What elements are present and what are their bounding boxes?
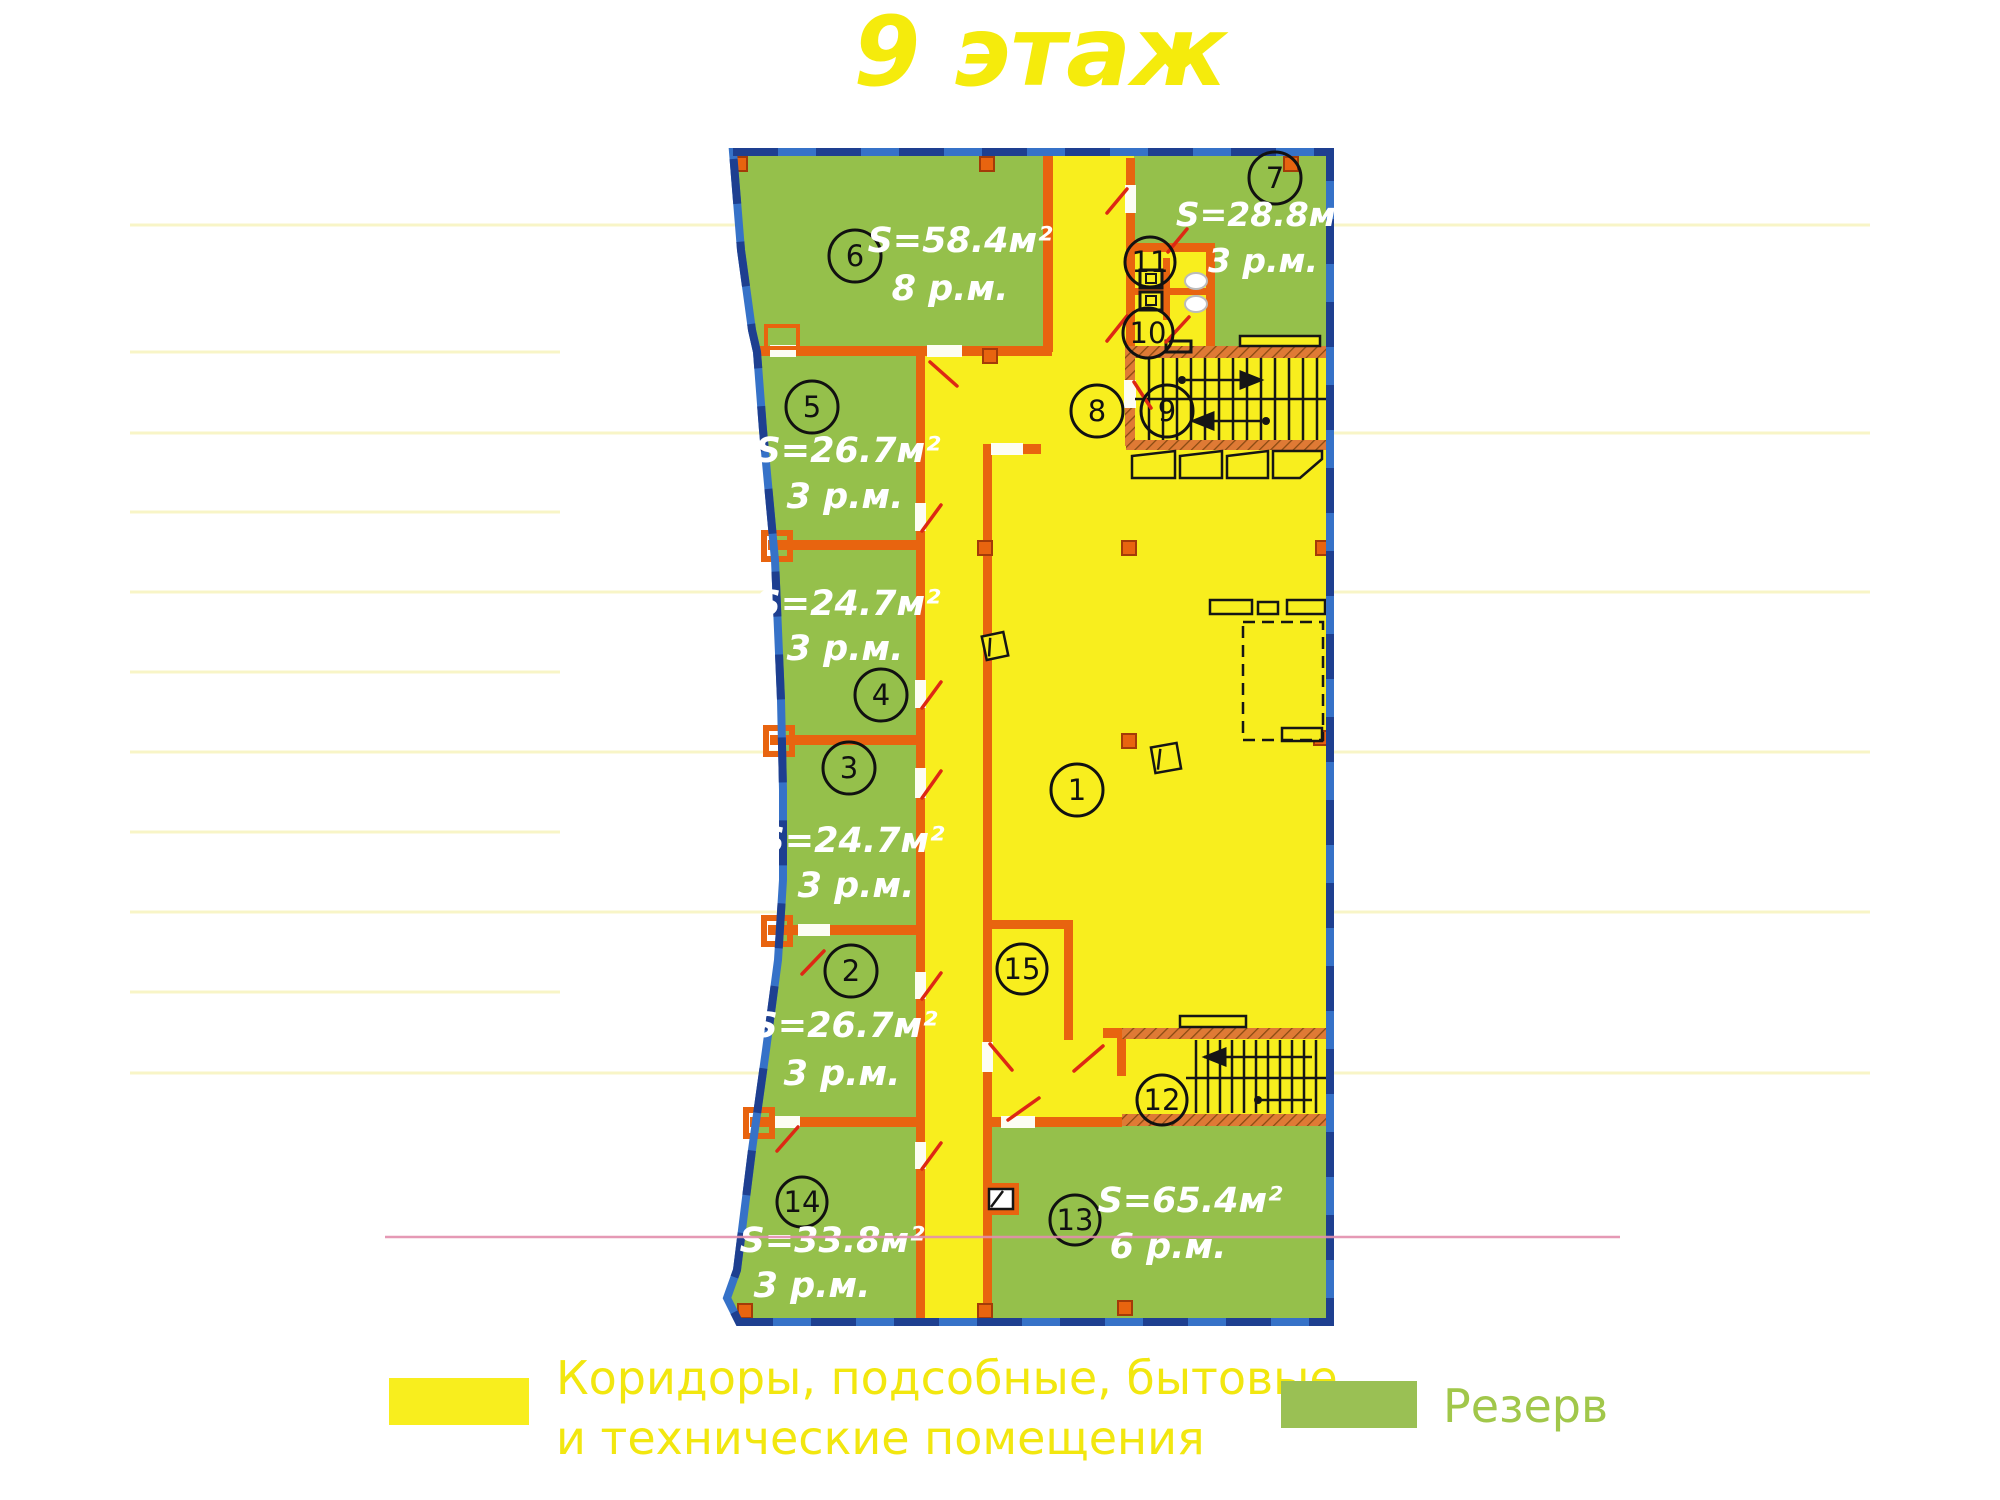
floor-plan-page: 9 этаж (0, 0, 2000, 1500)
furniture-rect (1287, 600, 1325, 614)
svg-text:3: 3 (840, 751, 858, 785)
svg-text:12: 12 (1144, 1083, 1181, 1117)
room-3-area: S=24.7м² (760, 821, 945, 861)
legend-corridor-line1: Коридоры, подсобные, бытовые (556, 1351, 1338, 1405)
legend-corridor-line2: и технические помещения (556, 1411, 1205, 1465)
room-6-parking: 8 р.м. (892, 269, 1009, 309)
legend-reserve-swatch (1281, 1381, 1417, 1428)
stair-rail-bottom (1180, 1016, 1246, 1027)
wall-stair2-bit (1103, 1028, 1119, 1038)
wall-stair2-top (1122, 1028, 1330, 1039)
svg-text:13: 13 (1057, 1203, 1094, 1237)
svg-text:4: 4 (872, 678, 890, 712)
furniture-tilted-square (1151, 743, 1181, 773)
vent-shaft-room13 (983, 1183, 1019, 1215)
room-6-area: S=58.4м² (868, 221, 1053, 261)
svg-text:14: 14 (784, 1185, 821, 1219)
room-4-parking: 3 р.м. (787, 629, 904, 669)
door-gap-3-2 (798, 924, 830, 936)
floor-plan-canvas: 9 этаж (0, 0, 2000, 1500)
svg-text:15: 15 (1004, 952, 1041, 986)
legend-corridor-swatch (389, 1378, 529, 1425)
furniture-rect (1258, 602, 1278, 614)
svg-text:5: 5 (803, 390, 821, 424)
wall-room15-top (983, 920, 1073, 929)
svg-text:7: 7 (1266, 161, 1284, 195)
room-13-parking: 6 р.м. (1110, 1227, 1227, 1267)
door-gap-room1-north (991, 443, 1023, 455)
room-7-area: S=28.8м² (1176, 195, 1351, 234)
room-5-parking: 3 р.м. (787, 477, 904, 517)
room-5-area: S=26.7м² (756, 431, 941, 471)
furniture-tilted-square (982, 632, 1009, 660)
door-gap-room13 (1001, 1116, 1035, 1128)
room-13-area: S=65.4м² (1098, 1181, 1283, 1221)
room-4-area: S=24.7м² (756, 584, 941, 624)
room-3-parking: 3 р.м. (798, 866, 915, 906)
legend-reserve-label: Резерв (1443, 1379, 1608, 1433)
stair-rail-top (1240, 336, 1320, 346)
room-2-area: S=26.7м² (753, 1006, 938, 1046)
room-7-parking: 3 р.м. (1208, 241, 1318, 280)
svg-text:8: 8 (1088, 394, 1106, 428)
svg-text:10: 10 (1130, 316, 1167, 350)
room-14-area: S=33.8м² (740, 1221, 925, 1261)
wall-stair1-bottom (1126, 440, 1330, 450)
room-2-parking: 3 р.м. (784, 1054, 901, 1094)
svg-text:9: 9 (1158, 394, 1176, 428)
room-14-parking: 3 р.м. (754, 1266, 871, 1306)
wall-room6-bottom (756, 346, 1052, 356)
storage-closets (1132, 451, 1322, 478)
svg-text:2: 2 (842, 954, 860, 988)
room-13-region (987, 1126, 1330, 1322)
svg-text:1: 1 (1068, 773, 1086, 807)
svg-text:11: 11 (1132, 245, 1169, 279)
wall-room15-right (1064, 920, 1073, 1040)
furniture-rect (1210, 600, 1252, 614)
page-title: 9 этаж (853, 0, 1229, 108)
legend: Коридоры, подсобные, бытовые и техническ… (389, 1351, 1608, 1465)
svg-text:6: 6 (846, 239, 864, 273)
door-gap-room6-hall (927, 345, 962, 357)
